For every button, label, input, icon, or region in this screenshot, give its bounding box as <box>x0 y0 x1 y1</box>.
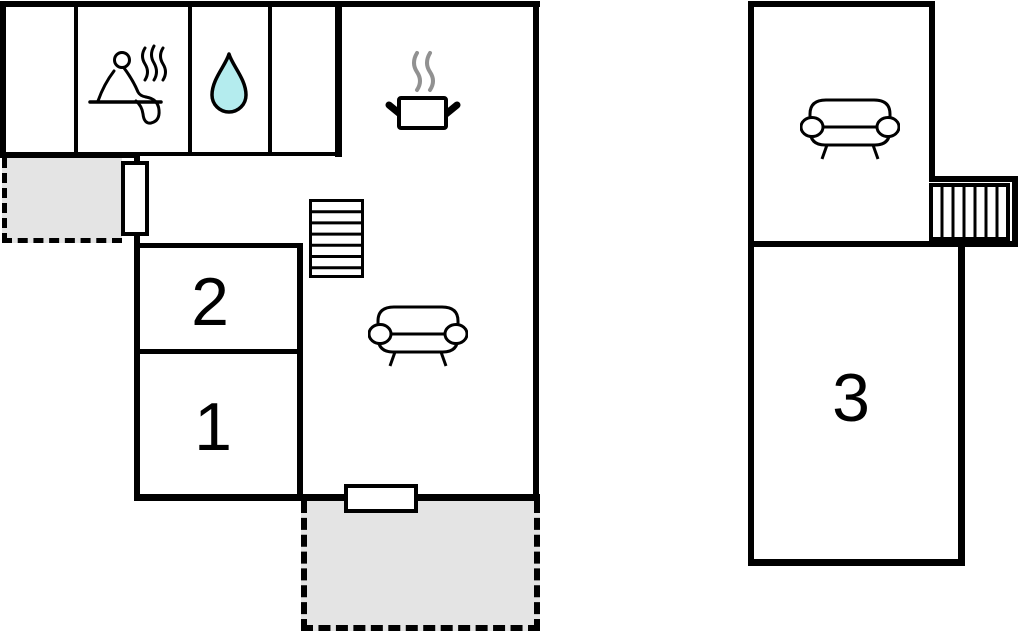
wall-segment <box>748 1 754 566</box>
wall-segment <box>748 559 965 566</box>
bottom-terrace <box>301 501 540 631</box>
wall-segment <box>268 1 272 156</box>
wall-segment <box>335 1 342 157</box>
wall-segment <box>958 241 965 566</box>
stairs-icon <box>929 183 1010 241</box>
wall-segment <box>929 176 1018 182</box>
wall-segment <box>140 152 342 156</box>
sofa-icon <box>368 303 468 369</box>
room-1-label: 1 <box>194 393 232 461</box>
wall-segment <box>958 241 1018 247</box>
sauna-icon <box>88 38 170 130</box>
stairs-icon <box>309 199 364 278</box>
wall-segment <box>134 494 540 501</box>
floor-plan: 2 1 <box>0 0 1024 631</box>
wall-segment <box>748 241 965 247</box>
wall-segment <box>929 1 935 182</box>
wall-segment <box>134 243 303 248</box>
water-drop-icon <box>208 51 250 119</box>
west-door <box>121 161 149 236</box>
room-3-label: 3 <box>832 364 870 432</box>
wall-segment <box>297 243 303 494</box>
cooking-pot-icon <box>383 48 463 132</box>
wall-segment <box>74 1 78 156</box>
wall-segment <box>533 1 539 501</box>
top-left-terrace <box>2 158 122 243</box>
room-2-label: 2 <box>191 268 229 336</box>
wall-segment <box>0 1 6 158</box>
sofa-icon <box>800 96 900 162</box>
wall-segment <box>748 1 935 7</box>
wall-segment <box>188 1 192 156</box>
wall-segment <box>1012 176 1018 247</box>
south-door <box>344 484 418 513</box>
wall-segment <box>134 349 303 354</box>
